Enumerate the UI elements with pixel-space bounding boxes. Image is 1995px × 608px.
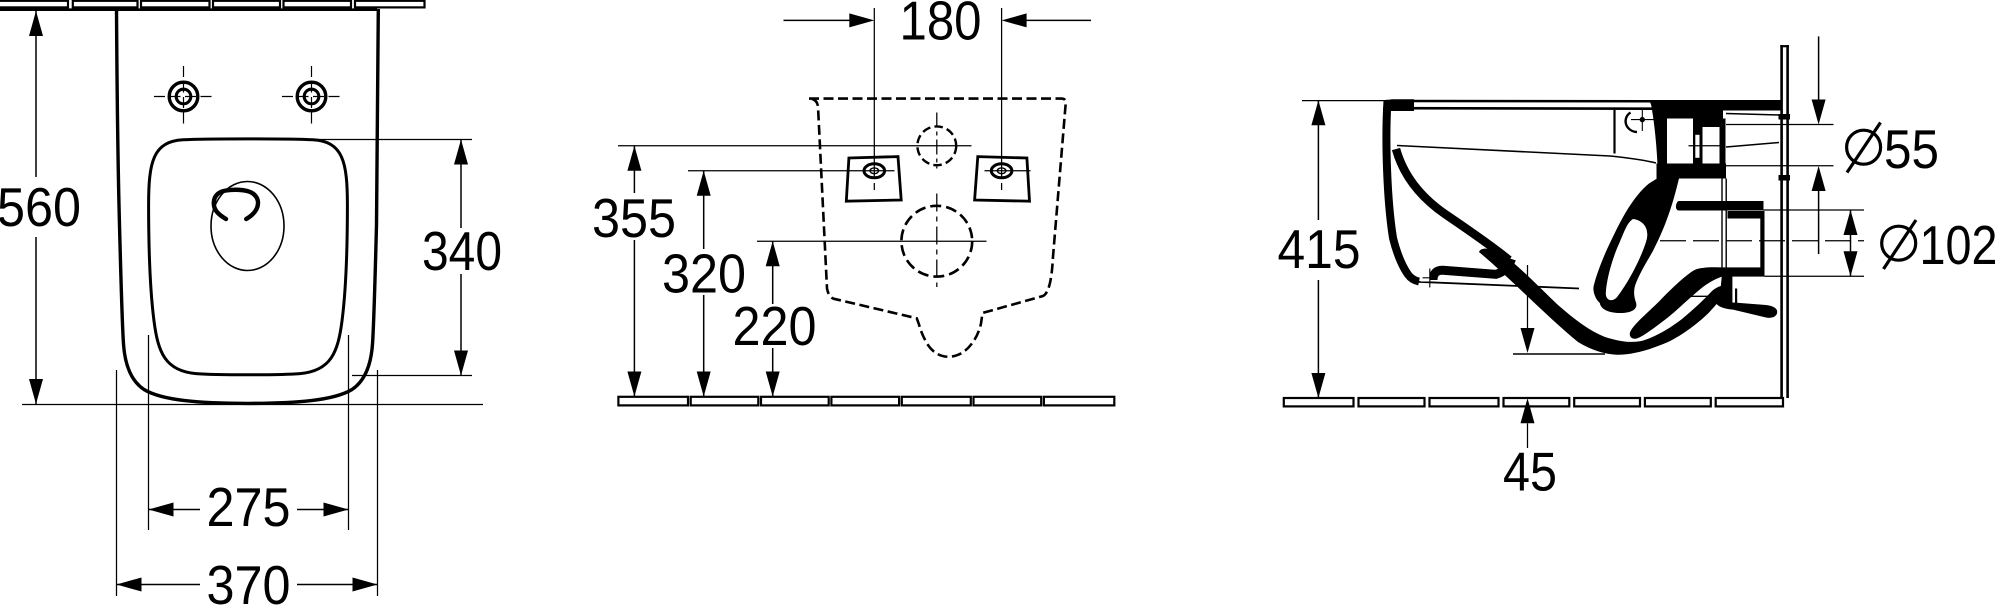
svg-text:370: 370 [207, 555, 291, 608]
svg-text:220: 220 [733, 296, 817, 357]
svg-text:415: 415 [1278, 219, 1361, 280]
svg-text:355: 355 [592, 188, 676, 249]
svg-text:340: 340 [422, 221, 502, 282]
svg-text:45: 45 [1503, 442, 1557, 503]
svg-text:180: 180 [900, 0, 982, 52]
svg-text:102: 102 [1920, 215, 1995, 276]
svg-text:275: 275 [207, 477, 291, 538]
svg-text:55: 55 [1884, 119, 1939, 180]
svg-text:560: 560 [0, 177, 81, 238]
